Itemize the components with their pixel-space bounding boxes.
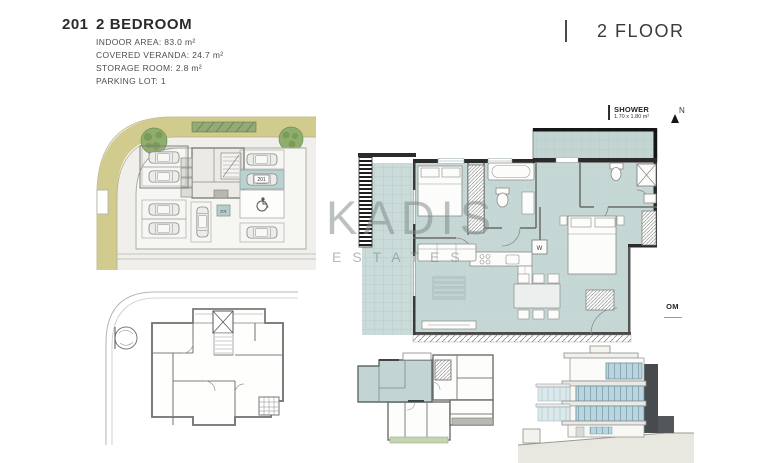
site-parking-plan: 201 201	[84, 102, 316, 270]
parking-spot-label: 201	[257, 177, 266, 183]
floor-slab	[562, 381, 646, 386]
car	[197, 207, 208, 237]
spec-storage-room: STORAGE ROOM: 2.8 m²	[96, 62, 223, 75]
rug	[432, 276, 466, 300]
green-strip	[390, 437, 448, 443]
tree-circle-icon	[115, 327, 137, 349]
hedge	[192, 122, 256, 132]
car	[149, 223, 179, 234]
divider-bar	[565, 20, 567, 42]
label-underline	[664, 317, 682, 318]
north-arrow-icon: N	[669, 106, 689, 126]
unit-specs: INDOOR AREA: 83.0 m² COVERED VERANDA: 24…	[96, 36, 223, 88]
shower-size: 1.70 x 1.80 m²	[614, 114, 649, 120]
unit-201-highlight	[358, 360, 432, 402]
floor-label-group: 2 FLOOR	[565, 20, 685, 42]
north-triangle	[671, 114, 679, 123]
floor-key-plan	[345, 352, 513, 462]
spec-covered-veranda: COVERED VERANDA: 24.7 m²	[96, 49, 223, 62]
disabled-parking-spot	[240, 190, 284, 218]
windows	[606, 363, 642, 379]
stairs	[214, 333, 233, 355]
tv-console	[422, 321, 476, 329]
building-elevation	[518, 342, 694, 463]
floor-slab	[562, 421, 646, 425]
main-floor-plan: W	[356, 104, 668, 349]
spec-parking-lot: PARKING LOT: 1	[96, 75, 223, 88]
roof-terrace	[533, 128, 657, 162]
cropped-room-label-box: OM	[658, 288, 687, 338]
car	[149, 171, 179, 182]
floor-2	[536, 384, 644, 401]
parking-spot-201: 201	[240, 170, 284, 189]
car	[149, 204, 179, 215]
washer-label: W	[537, 246, 543, 252]
entry-structure	[523, 429, 540, 443]
floor-slab	[562, 401, 646, 406]
sink	[644, 194, 656, 203]
car	[149, 152, 179, 163]
entrance-gate	[97, 190, 108, 214]
floor-1	[536, 404, 644, 421]
bed-2	[560, 216, 624, 274]
floorplan-sheet: 201 2 BEDROOM INDOOR AREA: 83.0 m² COVER…	[0, 0, 768, 463]
neighbor-unit	[388, 402, 450, 440]
sofa	[418, 244, 476, 261]
spec-indoor-area: INDOOR AREA: 83.0 m²	[96, 36, 223, 49]
cropped-room-label: OM	[658, 302, 687, 311]
shower-label: SHOWER	[614, 105, 649, 114]
elevator-shaft	[213, 311, 233, 333]
balcony-protrusion	[403, 353, 431, 360]
floor-label: 2 FLOOR	[597, 21, 685, 42]
stairwell	[435, 360, 451, 380]
bed-1	[418, 166, 462, 216]
roof-slab	[564, 353, 638, 358]
shower-annotation: SHOWER 1.70 x 1.80 m²	[608, 105, 649, 120]
bathtub	[488, 163, 534, 180]
washing-machine: W	[532, 240, 547, 254]
toilet	[496, 188, 509, 207]
car	[247, 154, 277, 165]
skylight-grid	[259, 397, 279, 415]
ground-floor	[568, 425, 644, 437]
unit-type-title: 2 BEDROOM	[96, 16, 192, 33]
terrace-band	[452, 418, 493, 425]
roof-key-plan	[95, 283, 300, 453]
storage-room-201: 201	[217, 205, 230, 216]
dark-base	[658, 416, 674, 433]
shower-stall	[637, 164, 656, 186]
car	[247, 227, 277, 238]
tree-icon	[279, 127, 303, 151]
storage-closet	[586, 290, 614, 310]
unit-number: 201	[62, 16, 89, 33]
dining-set	[514, 274, 560, 319]
storage-room-label: 201	[220, 209, 227, 214]
vanity	[522, 192, 534, 214]
north-letter: N	[679, 106, 685, 115]
